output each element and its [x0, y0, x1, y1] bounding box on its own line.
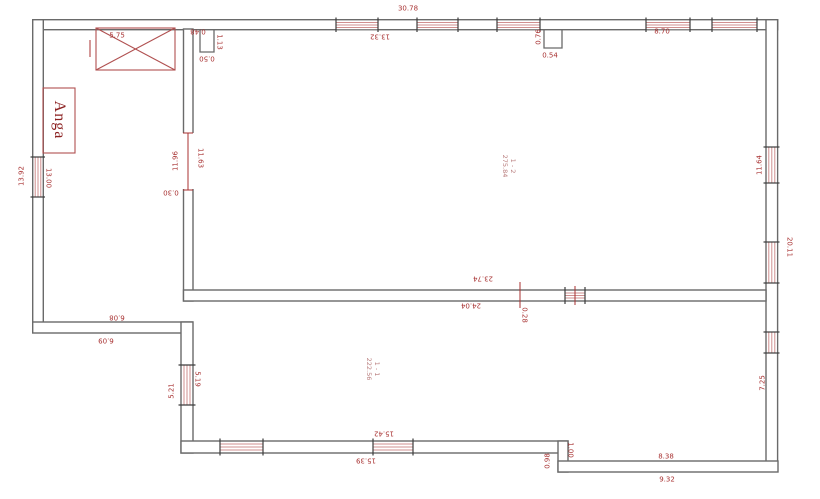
room-1-2-area: 275.84 — [501, 155, 509, 178]
dim-label-6-09: 6.09 — [98, 337, 114, 344]
dim-label-0-76: 0.76 — [536, 29, 543, 45]
walls — [33, 20, 778, 472]
dim-label-0-48: 0.48 — [190, 28, 206, 35]
room-1-1-area: 222.56 — [365, 358, 373, 381]
dim-label-13-32: 13.32 — [370, 33, 390, 40]
window-symbol-middle-wall — [565, 286, 585, 305]
dimension-ticks — [90, 40, 520, 308]
room-1-1-name: 1 - 1 — [373, 358, 381, 381]
dim-label-0-98: 0.98 — [545, 453, 552, 469]
dim-label-1-00: 1.00 — [567, 442, 574, 458]
dim-label-15-42: 15.42 — [374, 430, 394, 437]
notch-right — [544, 30, 562, 48]
dim-label-8-70: 8.70 — [654, 29, 670, 36]
dim-label-8-38: 8.38 — [658, 454, 674, 461]
dim-label-13-92: 13.92 — [19, 166, 26, 186]
dim-label-9-32: 9.32 — [659, 477, 675, 484]
dim-label-23-74: 23.74 — [473, 275, 493, 282]
dim-label-7-25: 7.25 — [760, 375, 767, 391]
dim-label-11-63: 11.63 — [197, 148, 204, 168]
dim-label-0-54: 0.54 — [542, 53, 558, 60]
dim-label-24-04: 24.04 — [461, 302, 481, 309]
dim-label-0-50: 0.50 — [199, 55, 215, 62]
room-1-2-name: 1 - 2 — [509, 155, 517, 178]
anga-room-label: Anga — [50, 101, 68, 140]
dim-label-11-96: 11.96 — [173, 151, 180, 171]
dim-label-30-78: 30.78 — [398, 6, 418, 13]
dim-label-0-28: 0.28 — [521, 307, 528, 323]
wall-bottom-right — [558, 461, 778, 472]
dim-label-1-13: 1.13 — [216, 34, 223, 50]
dim-label-11-64: 11.64 — [757, 155, 764, 175]
dim-label-13-00: 13.00 — [45, 168, 52, 188]
crossed-box-symbol — [96, 28, 175, 70]
dim-label-6-08: 6.08 — [109, 314, 125, 321]
door-opening-inner-wall — [183, 133, 195, 190]
floor-plan-canvas: 5.75 0.48 1.13 0.50 30.78 13.32 0.76 0.5… — [0, 0, 820, 499]
wall-corridor-bottom — [33, 322, 193, 333]
floor-plan-drawing — [0, 0, 820, 499]
room-label-1-1: 1 - 1 222.56 — [365, 358, 381, 381]
dim-label-5-75: 5.75 — [109, 33, 125, 40]
dim-label-0-30: 0.30 — [163, 189, 179, 196]
dim-label-5-21: 5.21 — [169, 383, 176, 399]
room-label-1-2: 1 - 2 275.84 — [501, 155, 517, 178]
dim-label-20-11: 20.11 — [786, 237, 793, 257]
dim-label-5-19: 5.19 — [194, 371, 201, 387]
wall-middle — [184, 290, 767, 301]
dim-label-15-39: 15.39 — [356, 457, 376, 464]
